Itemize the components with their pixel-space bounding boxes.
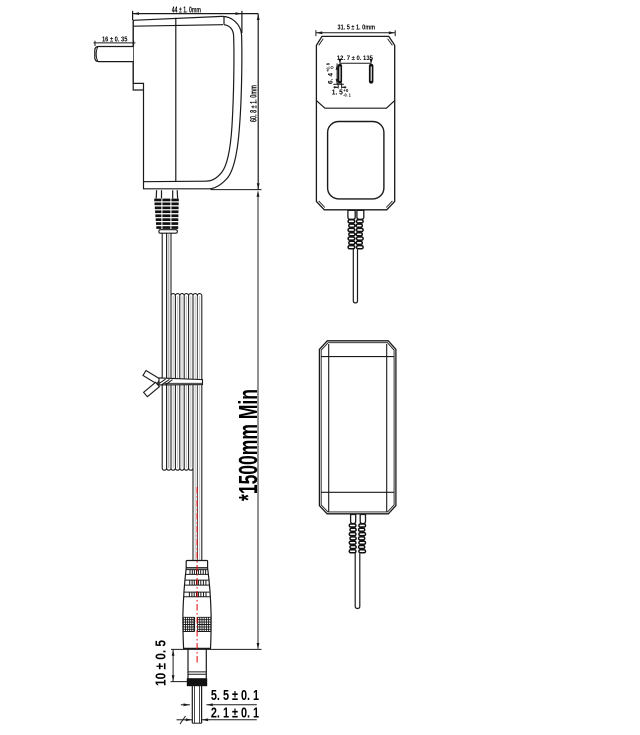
svg-text:6. 4: 6. 4: [328, 73, 335, 84]
svg-text:*1500mm Min: *1500mm Min: [235, 389, 263, 501]
svg-text:-0. 1: -0. 1: [343, 92, 351, 97]
svg-text:12. 7 ± 0. 135: 12. 7 ± 0. 135: [337, 55, 373, 62]
svg-text:10 ± 0. 5: 10 ± 0. 5: [153, 640, 169, 686]
svg-text:60. 8 ± 1. 0mm: 60. 8 ± 1. 0mm: [249, 85, 259, 122]
svg-text:5. 5 ± 0. 1: 5. 5 ± 0. 1: [211, 688, 259, 704]
svg-text:2. 1 ± 0. 1: 2. 1 ± 0. 1: [211, 706, 259, 722]
svg-text:16 ± 0. 35: 16 ± 0. 35: [102, 34, 127, 43]
svg-text:44 ± 1. 0mm: 44 ± 1. 0mm: [172, 6, 201, 15]
svg-text:31. 5 ± 1. 0mm: 31. 5 ± 1. 0mm: [338, 23, 376, 32]
svg-text:1. 5: 1. 5: [332, 88, 343, 97]
